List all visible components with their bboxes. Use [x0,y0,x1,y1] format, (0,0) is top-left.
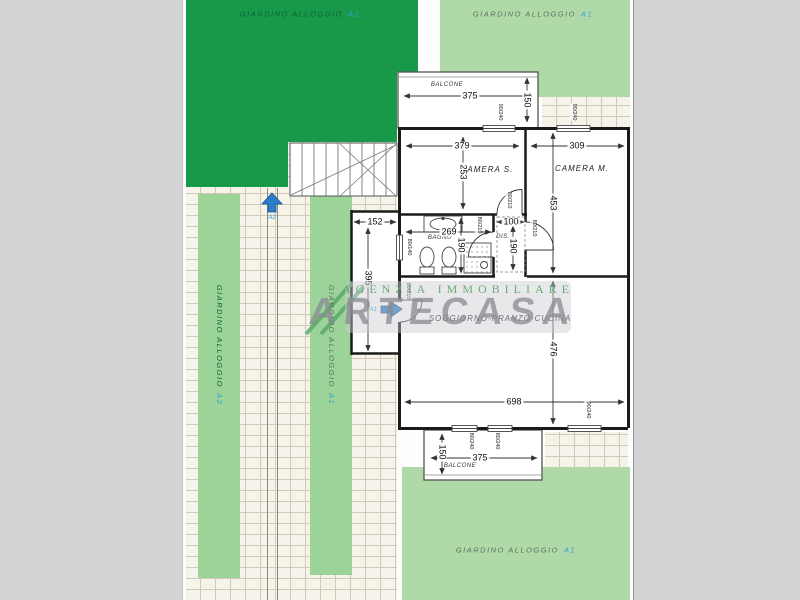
paved-terrace-top-right [542,97,630,127]
garden-unit-badge: A2 [348,9,360,18]
garden-label-text: GIARDINO ALLOGGIO [240,9,343,18]
door-size-label: 80/210 [475,217,481,234]
garden-area-top-left-2 [186,72,397,142]
floorplan-canvas: GIARDINO ALLOGGIOA2 GIARDINO ALLOGGIOA1 … [0,0,800,600]
window-size-label: 90/240 [584,402,590,419]
walkway-path [267,188,278,600]
dim-balcone-top-width: 375 [460,92,479,101]
dim-entry-width: 152 [365,218,384,227]
dim-soggiorno-height: 476 [549,339,558,358]
garden-label-strip-dark: GIARDINO ALLOGGIOA2 [215,285,223,405]
garden-unit-badge: A1 [327,393,336,405]
dim-dis-width: 100 [501,218,520,227]
dim-camera-m-height: 453 [549,193,558,212]
garden-unit-badge: A1 [581,9,593,18]
dim-dis-height: 190 [509,236,518,255]
garden-label-text: GIARDINO ALLOGGIO [456,545,559,554]
garden-area-top-left-3 [186,142,288,187]
garden-label-top-right: GIARDINO ALLOGGIOA1 [473,10,593,18]
dim-balcone-bottom-height: 150 [438,442,447,461]
garden-unit-badge: A2 [215,393,224,405]
window-size-label: 80/140 [405,239,411,256]
dim-bagno-height: 190 [457,235,466,254]
dim-camera-s-width: 379 [452,142,471,151]
paved-terrace-bottom-right [545,432,628,467]
dim-soggiorno-width: 698 [504,398,523,407]
paved-stairs-zone [288,142,397,187]
room-label-camera-m: CAMERA M. [555,165,609,173]
window-size-label: 90/240 [570,104,576,121]
garden-label-top-left: GIARDINO ALLOGGIOA2 [240,10,360,18]
garden-label-text: GIARDINO ALLOGGIO [215,285,224,388]
garden-area-bottom-right [402,467,630,600]
dim-camera-m-width: 309 [567,142,586,151]
garden-label-bottom-right: GIARDINO ALLOGGIOA1 [456,546,576,554]
dim-camera-s-height: 253 [459,162,468,181]
watermark-brand-logo: ARTECASA [307,293,578,331]
window-size-label: 80/240 [467,433,473,450]
path-arrow-label: A2 [268,215,275,221]
window-size-label: 80/240 [493,433,499,450]
room-label-camera-s: CAMERA S. [461,166,514,174]
garden-unit-badge: A1 [564,545,576,554]
dim-balcone-bottom-width: 375 [470,454,489,463]
door-size-label: 80/210 [505,192,511,209]
garden-label-text: GIARDINO ALLOGGIO [473,9,576,18]
room-label-balcone-bottom: BALCONE [444,463,476,469]
room-label-balcone-top: BALCONE [431,82,463,88]
door-size-label: 80/210 [530,220,536,237]
dim-balcone-top-height: 150 [523,90,532,109]
window-size-label: 90/240 [496,104,502,121]
